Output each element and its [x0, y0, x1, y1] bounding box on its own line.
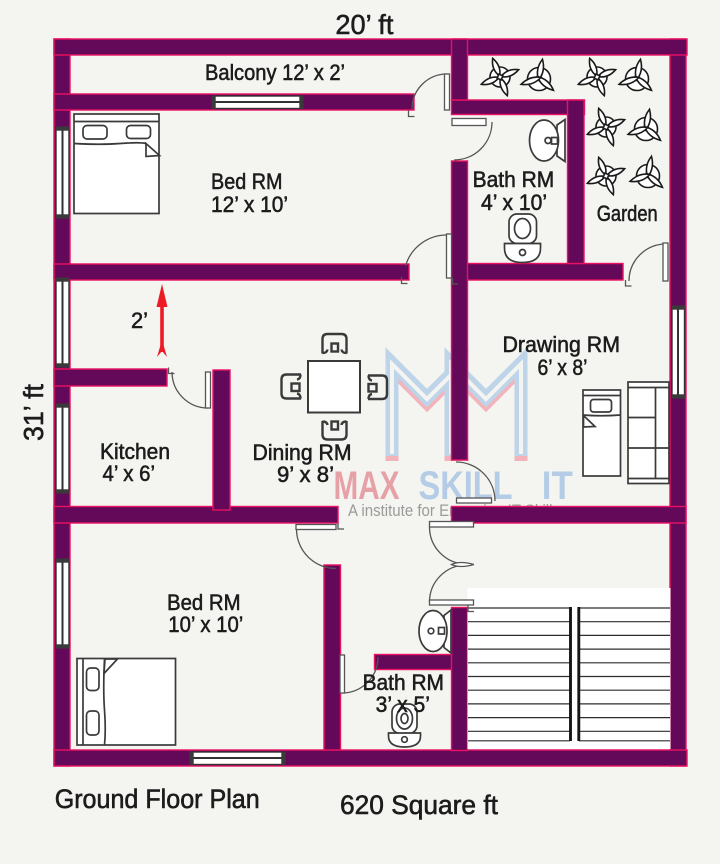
svg-text:10’ x 10’: 10’ x 10’	[168, 612, 243, 637]
svg-text:31’ ft: 31’ ft	[18, 384, 49, 441]
svg-text:20’ ft: 20’ ft	[335, 9, 393, 40]
svg-text:3’ x 5’: 3’ x 5’	[376, 692, 430, 717]
svg-text:2’: 2’	[131, 308, 148, 333]
svg-text:6’ x 8’: 6’ x 8’	[538, 355, 588, 380]
svg-text:Bath RM: Bath RM	[473, 167, 555, 192]
svg-text:620 Square ft: 620 Square ft	[340, 790, 499, 820]
svg-text:12’ x 10’: 12’ x 10’	[211, 192, 288, 217]
svg-text:Drawing RM: Drawing RM	[503, 332, 621, 357]
svg-text:4’ x 10’: 4’ x 10’	[481, 190, 547, 215]
svg-text:Balcony 12’ x 2’: Balcony 12’ x 2’	[205, 60, 345, 85]
svg-text:Garden: Garden	[597, 201, 658, 226]
svg-text:Bed RM: Bed RM	[211, 169, 283, 194]
svg-text:9’ x 8’: 9’ x 8’	[277, 462, 334, 487]
svg-text:Ground Floor Plan: Ground Floor Plan	[55, 784, 260, 814]
svg-text:4’ x 6’: 4’ x 6’	[103, 461, 156, 486]
